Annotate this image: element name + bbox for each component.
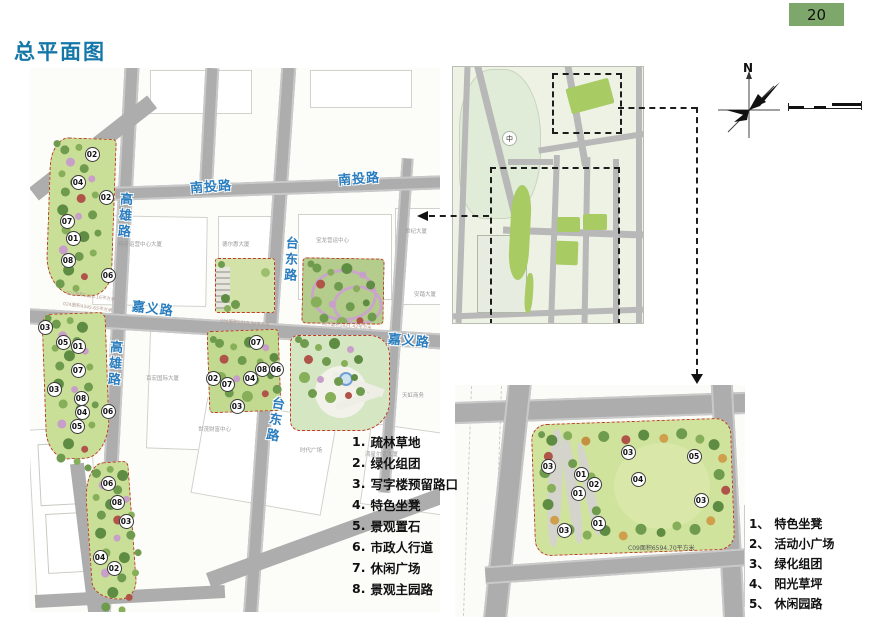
tree-cluster — [45, 315, 52, 322]
legend-item: 7. 休闲广场 — [352, 557, 458, 578]
legend-item-number: 3、 — [749, 555, 769, 572]
scale-bar-tick — [861, 101, 862, 110]
overview-road — [636, 67, 642, 323]
legend-item-label: 景观置石 — [370, 516, 420, 535]
tree-cluster — [84, 464, 91, 471]
legend-item: 6. 市政人行道 — [352, 536, 458, 557]
legend-item: 1、 特色坐凳 — [749, 513, 834, 533]
sun-lawn — [613, 441, 712, 530]
legend-item: 1. 疏林草地 — [352, 431, 458, 452]
compass-rose: N — [714, 58, 784, 143]
tree-cluster — [53, 140, 60, 147]
page-number-badge: 20 — [789, 3, 844, 26]
legend-item-number: 3. — [352, 476, 365, 491]
legend-detail: 1、 特色坐凳 2、 活动小广场 3、 绿化组团 4、 阳光草坪 5、 休闲园路 — [749, 513, 834, 613]
legend-item-label: 特色坐凳 — [774, 515, 822, 532]
detail-park-area — [531, 418, 735, 557]
selection-rect-top — [552, 73, 622, 134]
detail-area-caption: C09面积6594.70平方米 — [628, 543, 695, 552]
legend-main: 1. 疏林草地 2. 绿化组团 3. 写字楼预留路口 4. 特色坐凳 5. 景观… — [352, 431, 458, 599]
overview-key-map: 中 — [452, 66, 644, 324]
tree-cluster — [538, 431, 545, 438]
legend-item-number: 5、 — [749, 595, 769, 612]
legend-item-number: 2. — [352, 455, 365, 470]
selection-rect-bottom — [490, 167, 620, 324]
building-label: 天虹商务 — [402, 391, 424, 399]
legend-item-label: 活动小广场 — [774, 535, 834, 552]
legend-item: 4、 阳光草坪 — [749, 573, 834, 593]
connector-dashed-left — [429, 215, 489, 217]
legend-divider — [744, 505, 745, 607]
scale-bar-segment — [814, 106, 826, 109]
city-block — [310, 70, 412, 108]
legend-item-label: 写字楼预留路口 — [370, 474, 458, 493]
overview-road — [508, 159, 553, 165]
legend-item-number: 4、 — [749, 575, 769, 592]
legend-item: 5. 景观置石 — [352, 515, 458, 536]
legend-item-number: 1、 — [749, 515, 769, 532]
connector-dashed-right — [696, 107, 698, 375]
park-area — [41, 312, 110, 460]
legend-item-label: 市政人行道 — [370, 537, 433, 556]
legend-item: 8. 景观主园路 — [352, 578, 458, 599]
legend-item: 4. 特色坐凳 — [352, 494, 458, 515]
park-area — [290, 335, 390, 431]
scale-bar-tick — [788, 103, 789, 111]
legend-item: 2、 活动小广场 — [749, 533, 834, 553]
park-area — [45, 137, 116, 297]
legend-item-number: 6. — [352, 539, 365, 554]
legend-item-label: 绿化组团 — [370, 453, 420, 472]
fountain-icon — [339, 372, 353, 386]
legend-item: 2. 绿化组团 — [352, 452, 458, 473]
park-area — [215, 258, 275, 313]
legend-item-label: 景观主园路 — [370, 579, 433, 598]
arrow-down-icon — [691, 374, 703, 384]
scale-bar-segment — [788, 106, 804, 109]
legend-item-number: 4. — [352, 497, 365, 512]
legend-item: 5、 休闲园路 — [749, 593, 834, 613]
overview-center-label: 中 — [502, 131, 517, 146]
compass-north-label: N — [743, 61, 753, 75]
legend-item-label: 休闲广场 — [370, 558, 420, 577]
legend-item-number: 2、 — [749, 535, 769, 552]
legend-item-label: 特色坐凳 — [370, 495, 420, 514]
park-area — [301, 257, 384, 324]
connector-label: 世纪大厦 — [405, 227, 427, 235]
legend-item-number: 5. — [352, 518, 365, 533]
park-area — [83, 461, 138, 602]
page-title: 总平面图 — [14, 36, 106, 66]
legend-item: 3. 写字楼预留路口 — [352, 473, 458, 494]
legend-item-label: 阳光草坪 — [774, 575, 822, 592]
legend-item-label: 绿化组团 — [774, 555, 822, 572]
path-band — [332, 285, 383, 325]
terrace-steps — [216, 267, 230, 309]
park-area — [207, 329, 282, 413]
tree-cluster — [210, 336, 217, 343]
detail-plan-map: 03010201030405030103 C09面积6594.70平方米 — [455, 385, 745, 617]
tree-cluster — [307, 260, 314, 267]
arrow-left-icon — [417, 211, 428, 221]
legend-item-label: 休闲园路 — [774, 595, 822, 612]
tree-cluster — [295, 336, 302, 343]
scale-bar — [788, 100, 862, 116]
legend-item-number: 8. — [352, 581, 365, 596]
legend-item-label: 疏林草地 — [370, 432, 420, 451]
tree-cluster — [218, 261, 225, 268]
city-block — [150, 70, 252, 114]
legend-item-number: 7. — [352, 560, 365, 575]
scale-bar-segment — [832, 103, 862, 106]
connector-dashed-top — [618, 107, 697, 109]
legend-item: 3、 绿化组团 — [749, 553, 834, 573]
legend-item-number: 1. — [352, 434, 365, 449]
